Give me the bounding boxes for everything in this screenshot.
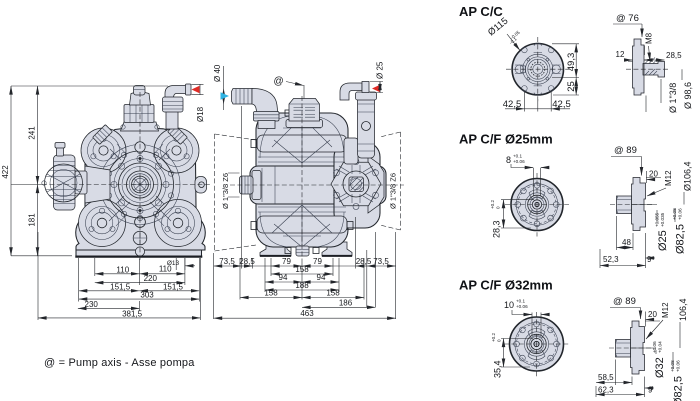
svg-text:20: 20 <box>648 310 657 319</box>
svg-text:Ø25: Ø25 <box>657 230 669 251</box>
svg-text:AP C/F Ø25mm: AP C/F Ø25mm <box>459 132 553 147</box>
svg-text:422: 422 <box>1 165 10 179</box>
svg-text:0: 0 <box>496 206 501 209</box>
svg-text:8: 8 <box>506 155 511 165</box>
svg-text:+0.08: +0.08 <box>672 208 677 220</box>
svg-text:158: 158 <box>326 289 340 298</box>
svg-text:Ø32: Ø32 <box>654 357 666 378</box>
svg-text:@ 89: @ 89 <box>613 296 636 307</box>
svg-text:Ø106,4: Ø106,4 <box>683 161 693 191</box>
svg-text:+0.1: +0.1 <box>516 299 526 304</box>
svg-text:@: @ <box>274 76 284 87</box>
svg-text:79: 79 <box>282 257 291 266</box>
svg-text:Ø 1"3/8: Ø 1"3/8 <box>668 83 678 113</box>
svg-text:Ø82,5: Ø82,5 <box>673 376 685 401</box>
svg-text:42,5: 42,5 <box>503 99 522 110</box>
svg-text:+0.04: +0.04 <box>658 341 663 353</box>
svg-text:158: 158 <box>295 265 309 274</box>
svg-text:241: 241 <box>28 126 37 140</box>
svg-text:48: 48 <box>622 238 631 247</box>
svg-text:62,3: 62,3 <box>598 386 614 395</box>
svg-text:28,5: 28,5 <box>356 257 372 266</box>
svg-text:Ø 25: Ø 25 <box>376 61 385 79</box>
svg-text:Ø 98,6: Ø 98,6 <box>683 82 693 109</box>
svg-text:186: 186 <box>339 299 353 308</box>
svg-text:9: 9 <box>647 255 652 264</box>
svg-text:28,5: 28,5 <box>666 51 682 60</box>
svg-text:25: 25 <box>566 81 577 92</box>
svg-text:381,5: 381,5 <box>122 309 143 318</box>
svg-text:+0.06: +0.06 <box>516 304 528 309</box>
svg-text:Ø 1"3/8 Z6: Ø 1"3/8 Z6 <box>221 173 230 209</box>
svg-text:@ 89: @ 89 <box>614 145 637 156</box>
svg-text:230: 230 <box>85 300 99 309</box>
svg-text:110: 110 <box>116 265 129 274</box>
svg-text:106,4: 106,4 <box>678 298 688 321</box>
svg-text:188: 188 <box>295 281 309 290</box>
svg-text:73,5: 73,5 <box>373 257 389 266</box>
svg-text:52,3: 52,3 <box>603 255 619 264</box>
svg-text:181: 181 <box>28 213 37 227</box>
svg-text:9: 9 <box>648 386 653 395</box>
svg-text:42,5: 42,5 <box>552 99 571 110</box>
svg-text:AP C/C: AP C/C <box>459 4 503 19</box>
svg-text:M8: M8 <box>645 32 654 44</box>
svg-text:Ø 40: Ø 40 <box>213 64 222 82</box>
svg-text:Ø82,5: Ø82,5 <box>675 224 687 254</box>
svg-text:Ø18: Ø18 <box>196 106 205 122</box>
svg-text:+0.2: +0.2 <box>491 332 496 342</box>
svg-text:20: 20 <box>649 170 658 179</box>
svg-text:463: 463 <box>300 309 314 318</box>
svg-text:0: 0 <box>497 339 502 342</box>
svg-text:35,4: 35,4 <box>493 360 503 378</box>
svg-text:M12: M12 <box>661 302 670 318</box>
svg-text:Ø 1"3/8 Z6: Ø 1"3/8 Z6 <box>389 173 398 209</box>
svg-text:10: 10 <box>504 300 514 310</box>
svg-text:28,3: 28,3 <box>492 220 502 238</box>
svg-text:@ = Pump axis - Asse pompa: @ = Pump axis - Asse pompa <box>44 357 195 369</box>
svg-text:+0.08: +0.08 <box>670 360 675 372</box>
svg-text:151,5: 151,5 <box>110 282 131 291</box>
svg-text:+0.035: +0.035 <box>660 212 665 227</box>
svg-text:+0.06: +0.06 <box>513 159 525 164</box>
svg-text:+0.1: +0.1 <box>513 154 523 159</box>
svg-text:12: 12 <box>616 50 625 59</box>
svg-text:@ 76: @ 76 <box>616 13 639 24</box>
svg-text:58,5: 58,5 <box>598 373 614 382</box>
svg-text:94: 94 <box>279 273 288 282</box>
svg-text:+0.2: +0.2 <box>490 199 495 209</box>
svg-text:Ø13: Ø13 <box>167 260 180 267</box>
svg-text:+0.06: +0.06 <box>676 360 681 372</box>
svg-text:303: 303 <box>140 291 154 300</box>
svg-text:AP C/F Ø32mm: AP C/F Ø32mm <box>459 278 553 293</box>
svg-text:158: 158 <box>264 289 278 298</box>
svg-text:+0.06: +0.06 <box>678 208 683 220</box>
svg-text:79: 79 <box>313 257 322 266</box>
svg-text:28,5: 28,5 <box>239 257 255 266</box>
svg-text:49,3: 49,3 <box>566 53 577 72</box>
svg-text:73,5: 73,5 <box>219 257 235 266</box>
svg-text:220: 220 <box>144 274 158 283</box>
svg-text:94: 94 <box>317 273 326 282</box>
svg-text:M12: M12 <box>664 170 673 186</box>
svg-text:151,5: 151,5 <box>163 282 184 291</box>
